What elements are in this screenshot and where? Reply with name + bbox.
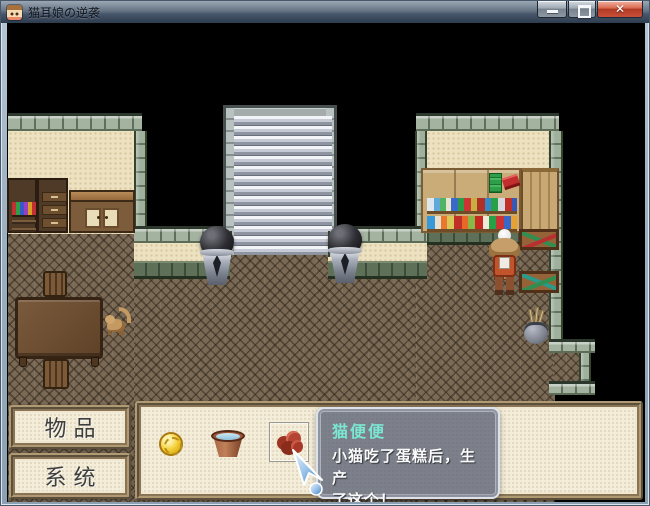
counter-knob: [105, 216, 108, 219]
alcove-cap-top: [549, 339, 595, 353]
mouse-cursor-icon: [290, 449, 326, 497]
counter-top: [69, 190, 135, 202]
bucket-water: [216, 433, 240, 440]
stick-pot: [524, 309, 548, 345]
gold-coin-item[interactable]: [159, 432, 183, 456]
counter-sideboard: [69, 190, 135, 233]
staircase: [223, 105, 337, 255]
wall-edge-left-block: [134, 131, 147, 226]
knight-torso: [202, 251, 232, 285]
crate-bottom: [519, 271, 559, 293]
menu-button-system-label: 系 统: [45, 460, 96, 492]
green-book-stack: [489, 173, 502, 193]
chair-top: [43, 271, 67, 297]
book-row: [12, 202, 36, 215]
shelf-items-row2: [427, 216, 517, 229]
knight-statue-right: [325, 224, 365, 292]
game-viewport[interactable]: 物 品 系 统 猫便便 小猫吃了蛋糕后，生产 了这个！: [7, 23, 645, 502]
alcove-edge-right: [579, 353, 591, 381]
table: [15, 297, 103, 359]
item-tooltip: 猫便便 小猫吃了蛋糕后，生产 了这个！: [316, 407, 500, 499]
table-leg: [19, 357, 27, 367]
cat: [107, 307, 133, 337]
plank-wall: [521, 168, 559, 233]
table-leg: [91, 357, 99, 367]
minimize-button[interactable]: [537, 1, 567, 18]
close-button[interactable]: ✕: [597, 1, 643, 18]
cat-legs: [108, 331, 124, 335]
menu-button-items-label: 物 品: [45, 411, 96, 443]
title-bar[interactable]: 猫耳娘の逆袭 ✕: [1, 1, 650, 23]
menu-button-system[interactable]: 系 统: [9, 453, 131, 499]
crate-top: [519, 229, 559, 250]
game-window: 猫耳娘の逆袭 ✕: [0, 0, 650, 506]
tooltip-line: 小猫吃了蛋糕后，生产: [332, 446, 486, 490]
app-icon: [7, 5, 22, 20]
menu-button-items[interactable]: 物 品: [9, 405, 131, 449]
knight-collar: [328, 247, 362, 254]
shelf-slat: [12, 220, 36, 224]
tooltip-line: 了这个！: [332, 490, 486, 503]
drawer-cabinet: [37, 178, 68, 233]
player-character: [487, 229, 523, 297]
drawer: [42, 205, 67, 215]
red-book: [502, 174, 521, 190]
wall-cap-left: [8, 113, 142, 131]
chair-bottom: [43, 359, 69, 389]
item-shelf: [421, 168, 521, 233]
cat-head: [105, 315, 115, 324]
wall-cap-right: [416, 113, 559, 131]
drawer: [42, 192, 67, 202]
tooltip-title: 猫便便: [332, 418, 486, 442]
player-legs: [495, 277, 514, 291]
knight-torso: [330, 249, 360, 283]
knight-collar: [200, 249, 234, 256]
alcove-cap-bottom: [549, 381, 595, 395]
counter-knob: [97, 216, 100, 219]
shelf-slat: [12, 228, 36, 232]
drawer: [42, 218, 67, 228]
player-feet: [495, 290, 514, 295]
water-bucket-item[interactable]: [211, 427, 245, 459]
knight-statue-left: [197, 226, 237, 294]
pot-vessel: [524, 322, 548, 344]
player-hair: [491, 238, 518, 256]
shelf-items-row1: [427, 198, 517, 211]
bookshelf: [7, 178, 37, 233]
player-apron: [499, 257, 510, 269]
window-title: 猫耳娘の逆袭: [28, 4, 100, 21]
stairs-steps: [234, 116, 332, 255]
maximize-button[interactable]: [568, 1, 596, 18]
floor-alcove: [553, 353, 579, 381]
